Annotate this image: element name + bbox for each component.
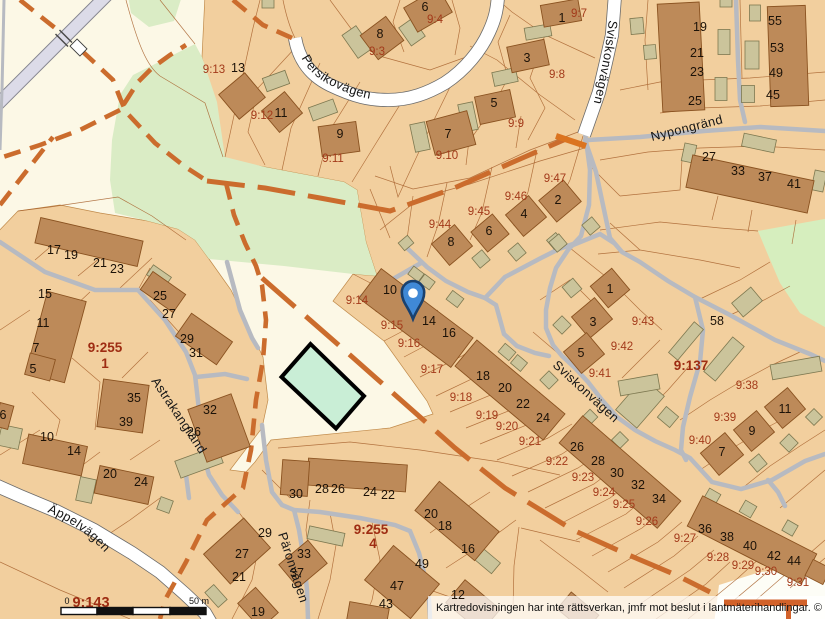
svg-text:9:3: 9:3 (369, 46, 385, 58)
svg-text:9:45: 9:45 (468, 206, 490, 218)
svg-text:9:4: 9:4 (427, 14, 444, 26)
svg-text:9:47: 9:47 (544, 173, 566, 185)
svg-text:9:30: 9:30 (755, 566, 777, 578)
svg-text:34: 34 (652, 492, 666, 506)
svg-text:49: 49 (769, 66, 783, 80)
svg-text:16: 16 (442, 326, 456, 340)
svg-text:11: 11 (275, 106, 288, 120)
svg-text:20: 20 (498, 381, 512, 395)
svg-text:16: 16 (461, 542, 475, 556)
svg-text:58: 58 (710, 314, 724, 328)
svg-text:3: 3 (524, 51, 531, 65)
svg-text:21: 21 (232, 570, 246, 584)
svg-text:22: 22 (516, 397, 530, 411)
svg-text:30: 30 (289, 487, 303, 501)
svg-text:9:15: 9:15 (381, 320, 403, 332)
svg-text:9:14: 9:14 (346, 295, 369, 307)
svg-text:27: 27 (702, 150, 716, 164)
svg-text:9:137: 9:137 (674, 358, 709, 373)
svg-text:20: 20 (103, 467, 117, 481)
svg-text:50 m: 50 m (189, 596, 209, 606)
svg-text:23: 23 (110, 262, 124, 276)
svg-text:19: 19 (693, 20, 707, 34)
svg-text:9:7: 9:7 (571, 8, 587, 20)
svg-text:24: 24 (134, 475, 148, 489)
svg-text:5: 5 (30, 362, 37, 376)
svg-text:15: 15 (38, 287, 52, 301)
svg-text:20: 20 (424, 507, 438, 521)
svg-text:11: 11 (37, 316, 50, 330)
svg-text:3: 3 (590, 315, 597, 329)
svg-text:21: 21 (93, 256, 107, 270)
svg-text:9:31: 9:31 (787, 577, 809, 589)
svg-text:9:27: 9:27 (674, 533, 696, 545)
svg-text:27: 27 (162, 307, 176, 321)
svg-text:9:22: 9:22 (546, 456, 568, 468)
svg-text:37: 37 (758, 170, 772, 184)
svg-text:29: 29 (180, 332, 194, 346)
svg-text:18: 18 (438, 519, 452, 533)
svg-text:5: 5 (578, 346, 585, 360)
svg-text:19: 19 (251, 605, 265, 619)
svg-text:53: 53 (770, 41, 784, 55)
svg-text:13: 13 (231, 61, 245, 75)
svg-text:9:16: 9:16 (398, 338, 420, 350)
svg-text:9:20: 9:20 (496, 421, 518, 433)
svg-text:26: 26 (331, 482, 345, 496)
svg-text:31: 31 (189, 346, 203, 360)
svg-text:9:11: 9:11 (322, 153, 344, 165)
svg-text:10: 10 (40, 430, 54, 444)
svg-text:9:42: 9:42 (611, 341, 633, 353)
svg-text:9:46: 9:46 (505, 191, 527, 203)
svg-text:0: 0 (64, 596, 69, 606)
svg-text:9:39: 9:39 (714, 412, 736, 424)
svg-text:39: 39 (119, 415, 133, 429)
svg-text:33: 33 (731, 164, 745, 178)
svg-text:4: 4 (521, 207, 528, 221)
svg-text:9:26: 9:26 (636, 516, 658, 528)
svg-text:30: 30 (610, 466, 624, 480)
svg-text:23: 23 (690, 65, 704, 79)
svg-text:9:44: 9:44 (429, 219, 452, 231)
svg-text:22: 22 (381, 488, 395, 502)
svg-text:28: 28 (315, 482, 329, 496)
svg-text:55: 55 (768, 14, 782, 28)
svg-text:40: 40 (743, 539, 757, 553)
svg-text:1: 1 (101, 356, 109, 371)
svg-text:19: 19 (64, 248, 78, 262)
svg-text:9:255: 9:255 (354, 522, 389, 537)
svg-text:9:28: 9:28 (707, 552, 729, 564)
svg-text:9:9: 9:9 (508, 118, 524, 130)
svg-text:7: 7 (33, 341, 40, 355)
svg-text:9:10: 9:10 (436, 150, 458, 162)
svg-text:9:8: 9:8 (549, 69, 565, 81)
svg-text:18: 18 (476, 369, 490, 383)
svg-text:35: 35 (127, 391, 141, 405)
svg-text:2: 2 (555, 193, 562, 207)
svg-text:24: 24 (536, 411, 550, 425)
svg-text:45: 45 (766, 88, 780, 102)
svg-text:5: 5 (491, 96, 498, 110)
svg-text:49: 49 (415, 557, 429, 571)
svg-text:44: 44 (787, 554, 801, 568)
svg-text:9:43: 9:43 (632, 316, 654, 328)
svg-text:7: 7 (719, 445, 726, 459)
svg-text:9:29: 9:29 (732, 560, 754, 572)
svg-text:32: 32 (631, 478, 645, 492)
svg-text:42: 42 (767, 549, 781, 563)
svg-text:7: 7 (445, 127, 452, 141)
svg-text:25: 25 (688, 94, 702, 108)
svg-text:33: 33 (297, 547, 311, 561)
svg-text:1: 1 (559, 11, 566, 25)
svg-text:9:23: 9:23 (572, 472, 594, 484)
svg-text:14: 14 (67, 444, 81, 458)
svg-text:24: 24 (363, 485, 377, 499)
svg-text:29: 29 (258, 526, 272, 540)
svg-text:9:38: 9:38 (736, 380, 758, 392)
svg-text:26: 26 (570, 440, 584, 454)
svg-text:43: 43 (379, 597, 393, 611)
svg-text:36: 36 (698, 522, 712, 536)
svg-text:9:17: 9:17 (421, 364, 443, 376)
svg-text:14: 14 (422, 314, 436, 328)
svg-text:9:21: 9:21 (519, 436, 541, 448)
svg-text:38: 38 (720, 530, 734, 544)
svg-text:12: 12 (451, 588, 465, 602)
svg-text:9:255: 9:255 (88, 340, 123, 355)
svg-text:1: 1 (607, 282, 614, 296)
svg-text:25: 25 (153, 289, 167, 303)
svg-text:9:13: 9:13 (203, 64, 225, 76)
svg-text:6: 6 (422, 0, 429, 14)
svg-text:9: 9 (337, 127, 344, 141)
svg-text:17: 17 (47, 243, 61, 257)
svg-text:8: 8 (377, 27, 384, 41)
svg-text:32: 32 (203, 403, 217, 417)
svg-text:Kartredovisningen har inte rät: Kartredovisningen har inte rättsverkan, … (436, 602, 825, 614)
svg-text:8: 8 (448, 235, 455, 249)
svg-text:28: 28 (591, 454, 605, 468)
svg-text:9:18: 9:18 (450, 392, 472, 404)
svg-text:21: 21 (690, 46, 704, 60)
svg-text:47: 47 (390, 579, 404, 593)
svg-text:9:41: 9:41 (589, 368, 611, 380)
svg-text:9:25: 9:25 (613, 499, 635, 511)
svg-text:9:40: 9:40 (689, 435, 711, 447)
svg-text:9:12: 9:12 (251, 110, 273, 122)
svg-text:6: 6 (0, 408, 7, 422)
svg-text:11: 11 (779, 402, 792, 416)
svg-text:9: 9 (749, 424, 756, 438)
svg-text:6: 6 (486, 224, 493, 238)
svg-text:41: 41 (787, 177, 801, 191)
svg-text:27: 27 (235, 547, 249, 561)
svg-text:10: 10 (383, 283, 397, 297)
svg-text:4: 4 (369, 536, 377, 551)
svg-text:9:24: 9:24 (593, 487, 616, 499)
